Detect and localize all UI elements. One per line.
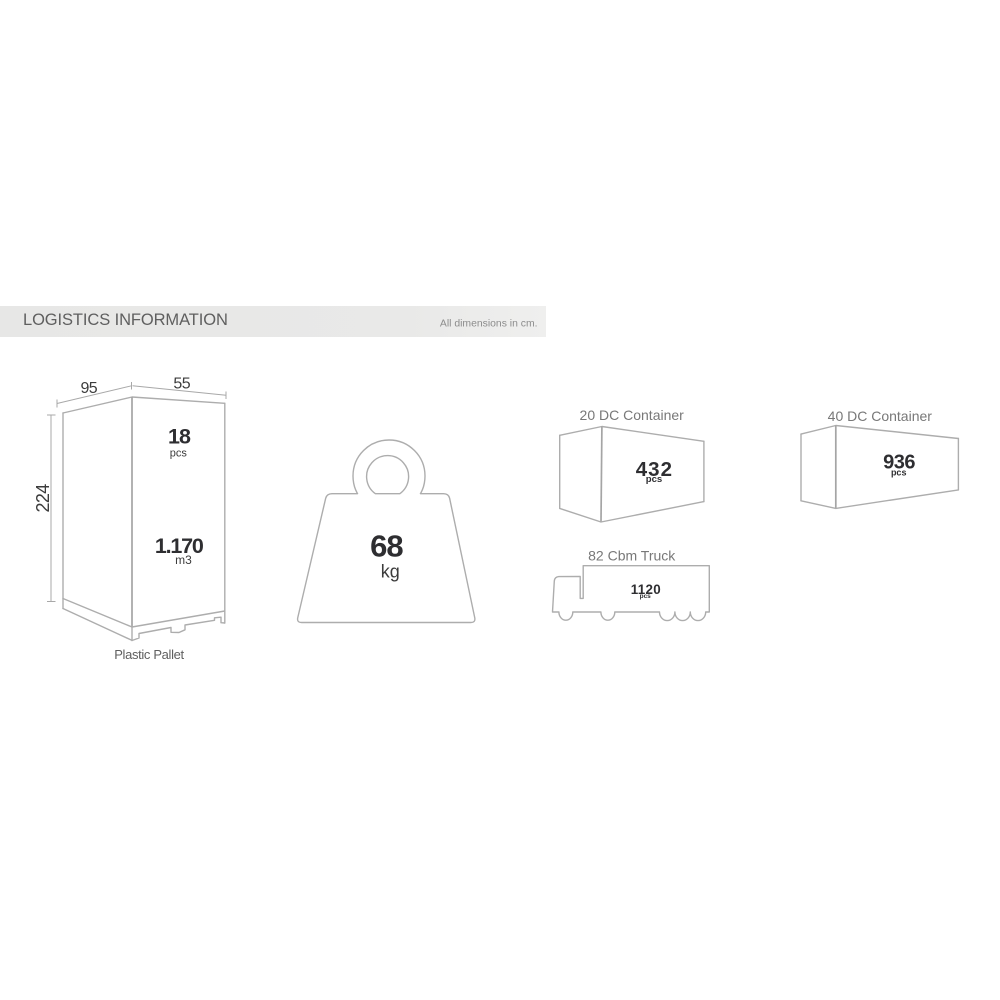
svg-text:Plastic Pallet: Plastic Pallet — [114, 647, 184, 662]
svg-text:pcs: pcs — [170, 448, 188, 460]
svg-text:pcs: pcs — [646, 474, 663, 485]
svg-text:40 DC Container: 40 DC Container — [828, 408, 933, 424]
svg-text:55: 55 — [173, 376, 190, 393]
svg-text:95: 95 — [80, 380, 97, 397]
svg-text:pcs: pcs — [891, 468, 907, 478]
svg-text:LOGISTICS INFORMATION: LOGISTICS INFORMATION — [23, 311, 228, 329]
svg-text:All dimensions in cm.: All dimensions in cm. — [440, 319, 538, 330]
svg-text:68: 68 — [370, 529, 403, 564]
svg-text:20 DC Container: 20 DC Container — [580, 407, 685, 423]
svg-text:224: 224 — [33, 484, 53, 513]
svg-text:18: 18 — [168, 424, 191, 448]
svg-text:82 Cbm Truck: 82 Cbm Truck — [588, 548, 676, 564]
svg-text:pcs: pcs — [640, 593, 652, 600]
svg-text:kg: kg — [381, 562, 400, 582]
svg-text:m3: m3 — [175, 553, 192, 567]
